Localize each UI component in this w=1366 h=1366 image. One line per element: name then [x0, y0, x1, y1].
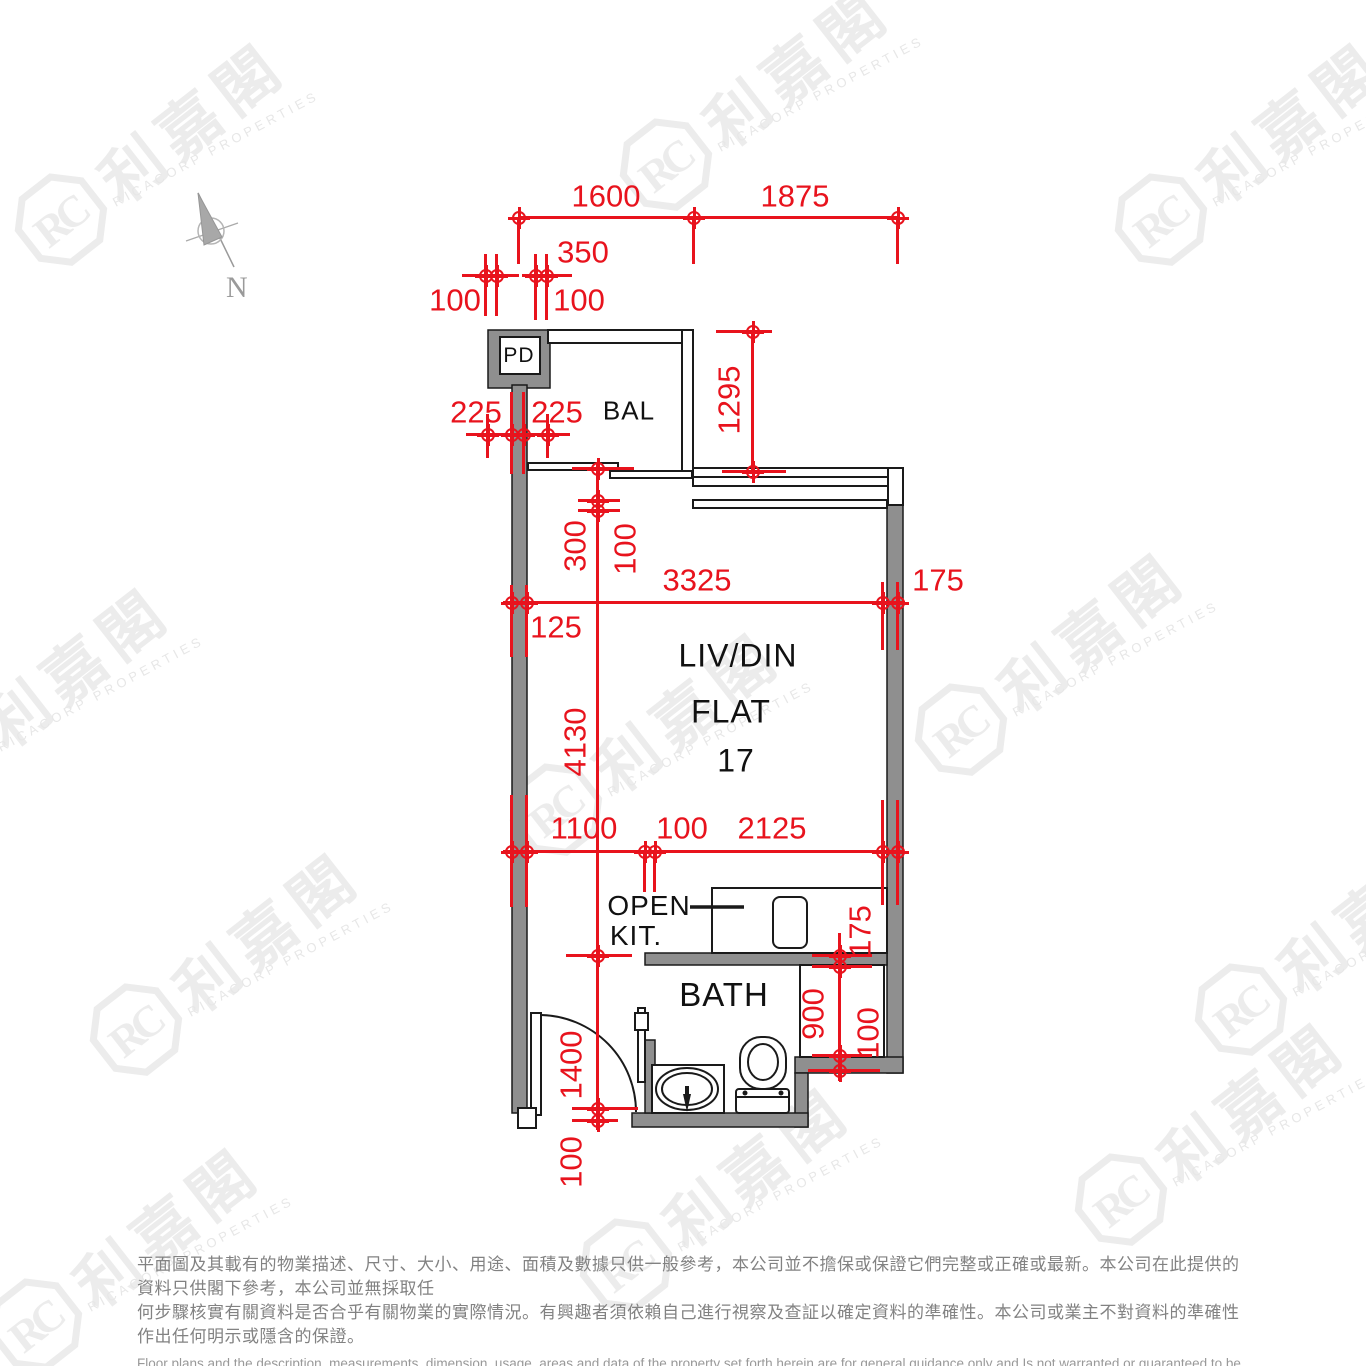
dim-label: 1400: [556, 1031, 587, 1100]
dimension-marker: [887, 207, 909, 229]
dim-label: 100: [610, 523, 641, 575]
dimension-marker: [829, 956, 851, 978]
room-label-balcony: BAL: [603, 396, 655, 427]
dim-label: 1295: [714, 366, 745, 435]
dimension-marker: [486, 265, 508, 287]
dim-label: 100: [853, 1007, 884, 1059]
dimension-marker: [587, 1110, 609, 1132]
dim-label: 900: [798, 988, 829, 1040]
dim-label: 100: [429, 285, 481, 316]
dim-label: 1600: [572, 181, 641, 212]
dim-label: 350: [557, 237, 609, 268]
dimension-marker: [742, 461, 764, 483]
dim-label: 225: [450, 397, 502, 428]
room-label-livdin: LIV/DIN: [678, 638, 797, 675]
dim-label: 125: [530, 612, 582, 643]
dimension-marker-circle: [520, 845, 534, 859]
dimension-marker: [683, 207, 705, 229]
dimension-marker-circle: [591, 504, 605, 518]
dimension-marker: [887, 592, 909, 614]
dimension-marker: [587, 945, 609, 967]
compass-needle: [198, 193, 222, 245]
dim-label: 100: [556, 1136, 587, 1188]
dimension-marker-circle: [541, 428, 555, 442]
dim-label: 1100: [551, 813, 618, 844]
dimension-marker: [516, 841, 538, 863]
dimension-marker: [587, 500, 609, 522]
dimension-marker-circle: [517, 428, 531, 442]
dimension-marker-circle: [481, 428, 495, 442]
disclaimer-en-block: Floor plans and the description, measure…: [137, 1354, 1241, 1366]
north-compass: N: [178, 185, 278, 315]
dimension-marker-circle: [746, 325, 760, 339]
dimension-line: [519, 216, 898, 219]
dimension-marker-circle: [891, 596, 905, 610]
room-label-open: OPEN: [607, 890, 690, 922]
disclaimer-en-line-1: Floor plans and the description, measure…: [137, 1354, 1241, 1366]
dimension-line: [545, 254, 548, 320]
dim-label: 2125: [738, 813, 807, 844]
dim-label: 3325: [663, 565, 732, 596]
disclaimer-zh-line-1: 平面圖及其載有的物業描述、尺寸、大小、用途、面積及數據只供一般參考，本公司並不擔…: [137, 1253, 1241, 1301]
dimension-marker-circle: [591, 949, 605, 963]
disclaimer-zh-line-2: 何步驟核實有關資料是否合乎有關物業的實際情況。有興趣者須依賴自己進行視察及查証以…: [137, 1301, 1241, 1349]
dimension-marker-circle: [833, 1064, 847, 1078]
dimension-line: [751, 332, 754, 472]
room-label-bath: BATH: [679, 976, 769, 1014]
dimension-marker: [742, 321, 764, 343]
dim-label: 4130: [560, 708, 591, 777]
room-label-flat: FLAT: [691, 694, 771, 731]
dimension-marker-circle: [648, 845, 662, 859]
dim-label: 175: [845, 905, 876, 957]
dimension-marker-circle: [490, 269, 504, 283]
dimension-marker-circle: [591, 462, 605, 476]
dim-label: 100: [656, 813, 708, 844]
dimension-line: [503, 601, 905, 604]
dimension-marker-circle: [540, 269, 554, 283]
floor-plan-page: RC 利嘉閣 RICACORP PROPERTIES RC 利嘉閣 RICACO…: [0, 0, 1366, 1366]
room-label-flatno: 17: [717, 743, 755, 780]
dimension-marker-circle: [833, 960, 847, 974]
disclaimer-footer: 平面圖及其載有的物業描述、尺寸、大小、用途、面積及數據只供一般參考，本公司並不擔…: [137, 1253, 1241, 1366]
dimension-marker-circle: [891, 211, 905, 225]
dimension-marker: [508, 207, 530, 229]
dimension-line: [596, 462, 599, 1130]
compass-north-label: N: [226, 271, 248, 304]
dim-label: 225: [531, 397, 583, 428]
dim-label: 1875: [761, 181, 830, 212]
dimension-marker-circle: [746, 465, 760, 479]
dimension-marker: [587, 458, 609, 480]
room-label-kit: KIT.: [610, 920, 662, 952]
dimension-marker-circle: [891, 845, 905, 859]
dim-label: 300: [560, 520, 591, 572]
dimension-marker-circle: [512, 211, 526, 225]
dim-label: 100: [553, 285, 605, 316]
room-label-pd: PD: [503, 344, 534, 368]
dim-label: 175: [912, 565, 964, 596]
dimension-marker-circle: [591, 1114, 605, 1128]
dimension-marker: [829, 1060, 851, 1082]
dimension-line: [503, 850, 903, 853]
dimension-marker-circle: [687, 211, 701, 225]
dimension-line: [534, 254, 537, 320]
dimension-marker: [887, 841, 909, 863]
dimension-marker-circle: [520, 596, 534, 610]
